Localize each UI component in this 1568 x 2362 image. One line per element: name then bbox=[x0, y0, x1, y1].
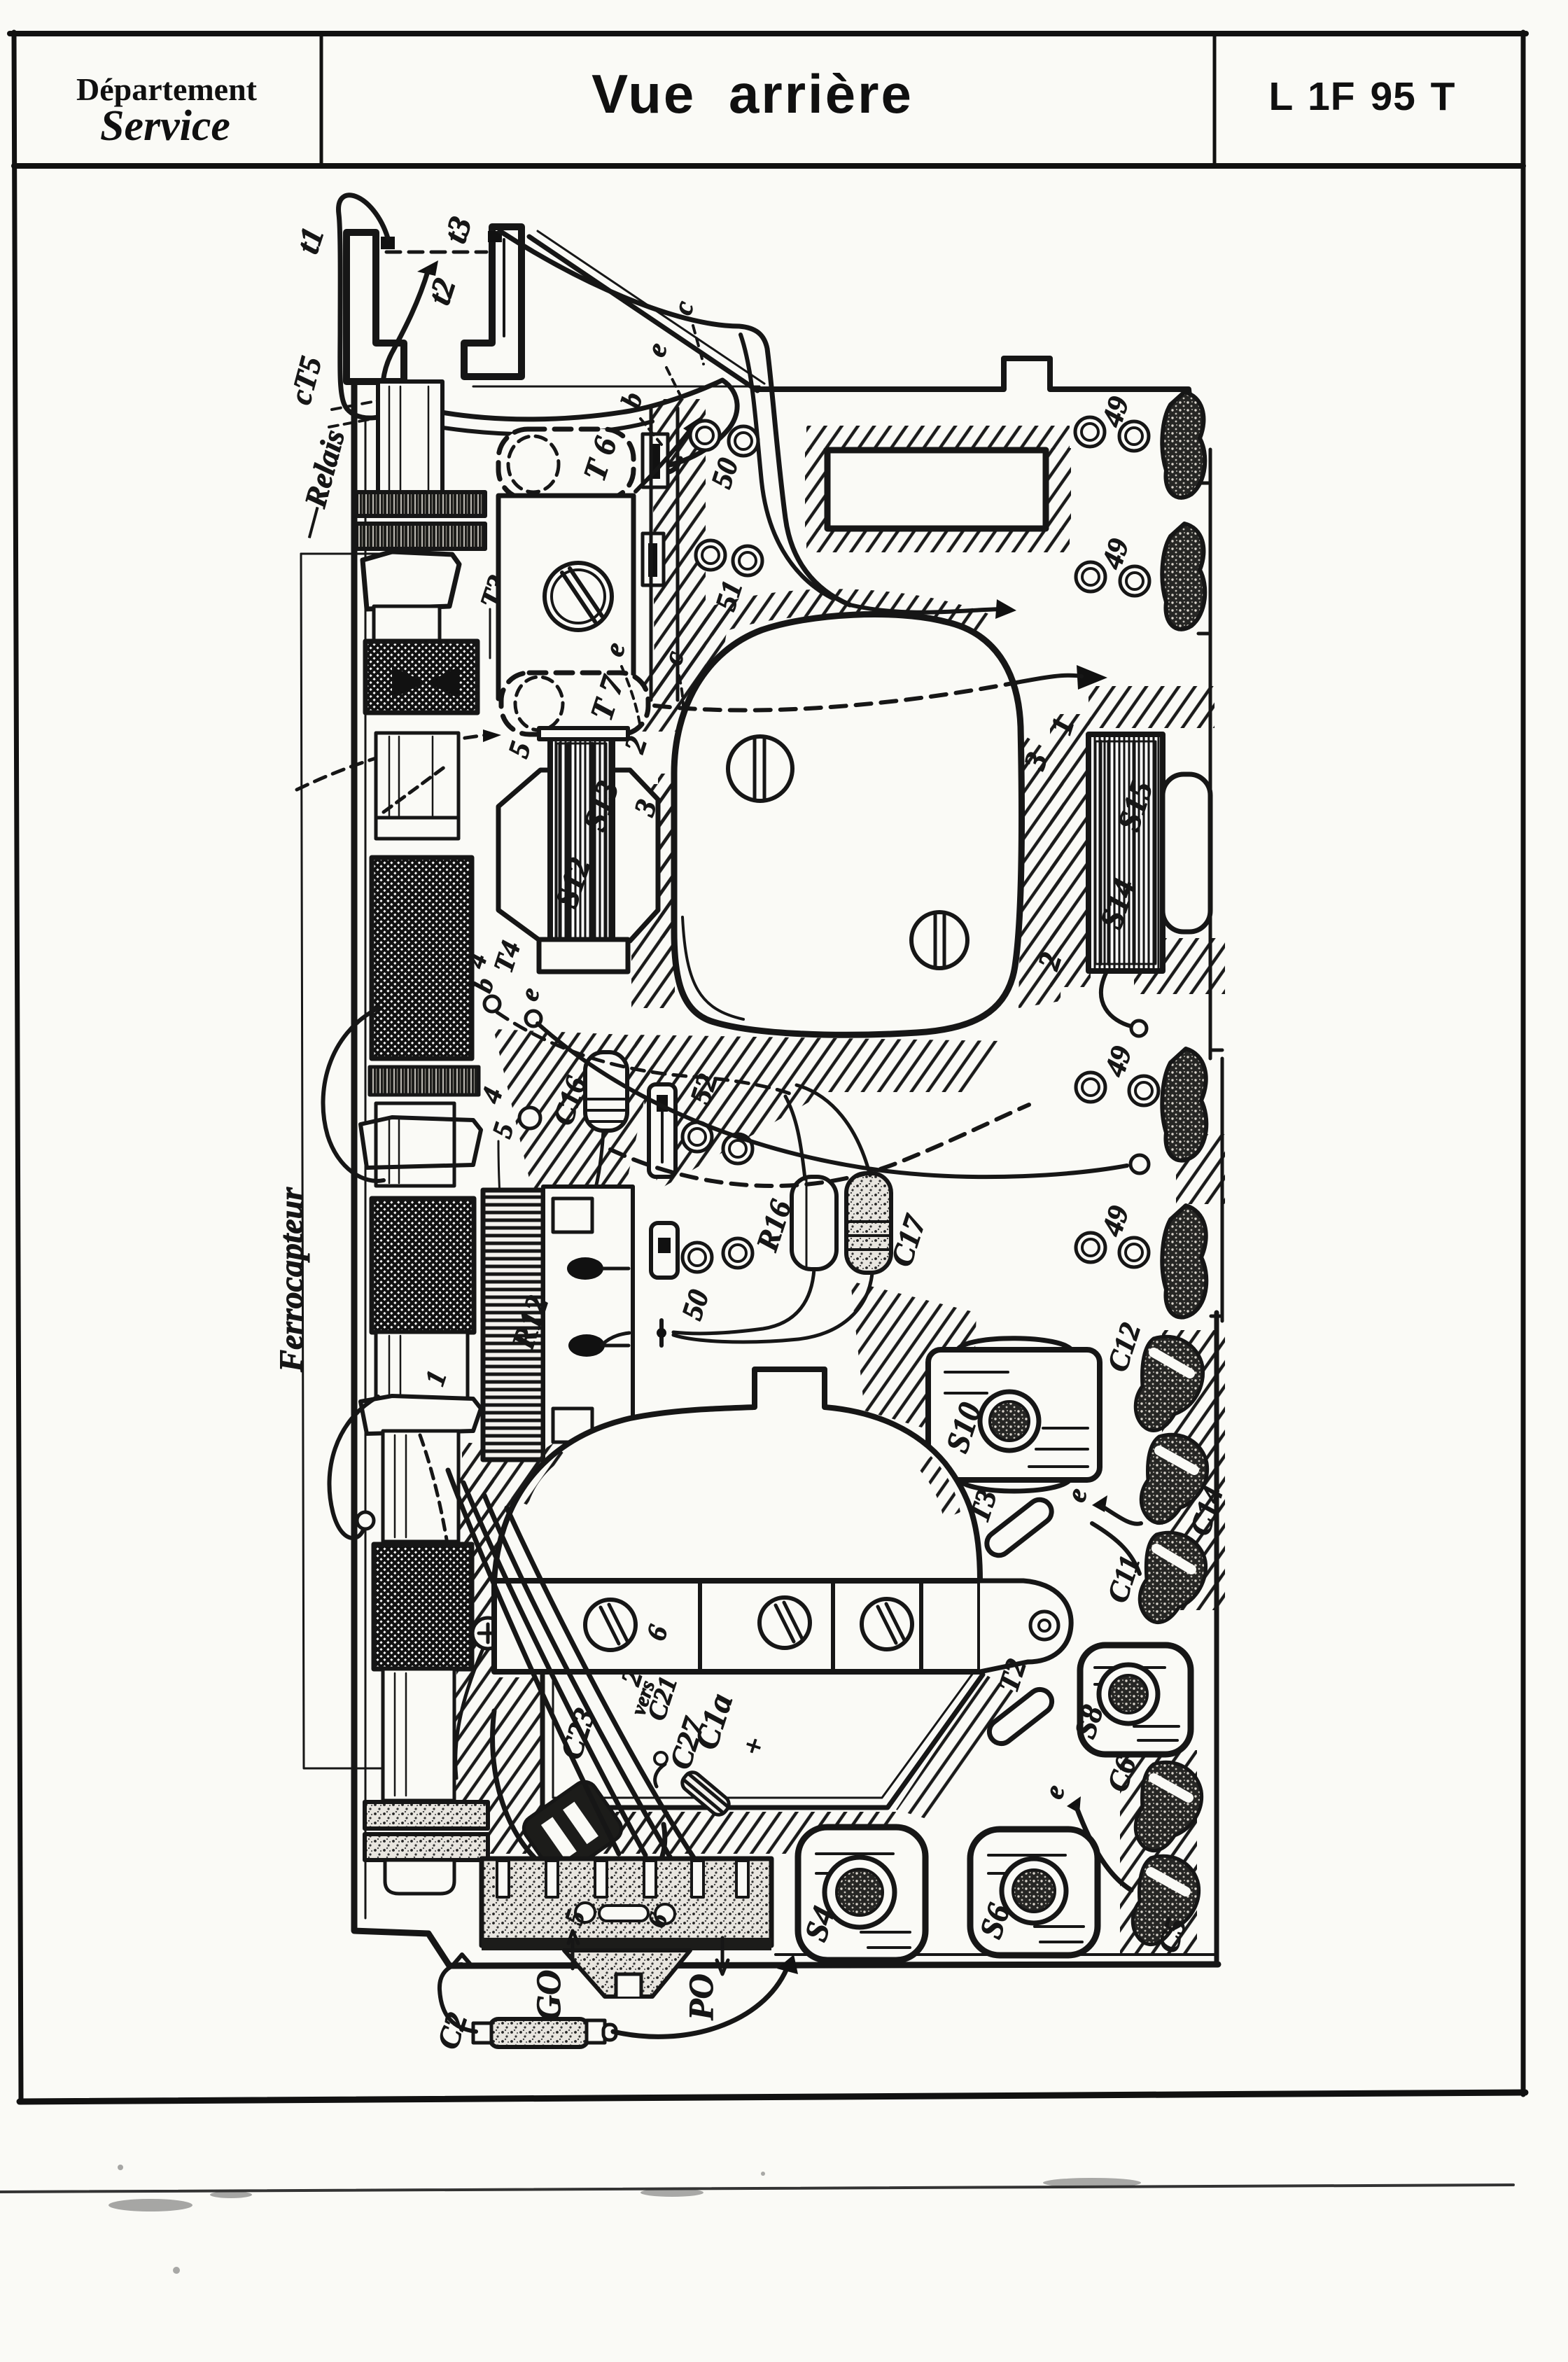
svg-text:PO: PO bbox=[681, 1973, 720, 2021]
svg-text:GO: GO bbox=[528, 1970, 568, 2020]
svg-text:Vue arrière: Vue arrière bbox=[591, 63, 913, 125]
svg-text:Service: Service bbox=[100, 102, 230, 150]
svg-text:Ferrocapteur: Ferrocapteur bbox=[273, 1187, 310, 1373]
svg-text:L 1F 95 T: L 1F 95 T bbox=[1268, 74, 1455, 119]
